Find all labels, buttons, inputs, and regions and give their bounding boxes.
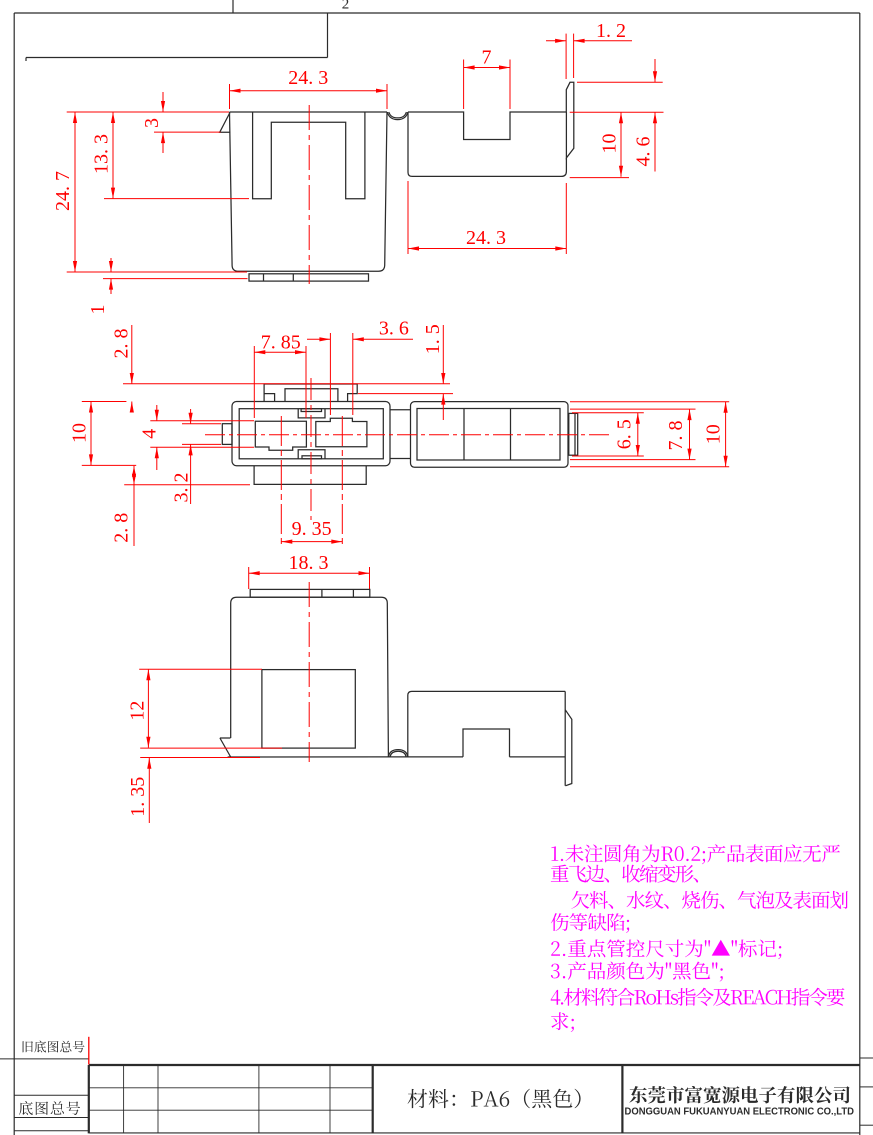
svg-text:7. 8: 7. 8: [665, 421, 687, 451]
svg-text:24. 7: 24. 7: [52, 171, 74, 211]
svg-text:24. 3: 24. 3: [466, 227, 506, 249]
svg-text:1. 2: 1. 2: [596, 20, 626, 42]
svg-text:1: 1: [87, 305, 109, 315]
svg-text:DONGGUAN FUKUANYUAN ELECTRONIC: DONGGUAN FUKUANYUAN ELECTRONIC CO.,LTD: [625, 1107, 855, 1118]
svg-text:3. 6: 3. 6: [379, 318, 409, 340]
svg-text:10: 10: [599, 134, 621, 154]
svg-text:1. 35: 1. 35: [127, 777, 149, 817]
svg-text:12: 12: [127, 701, 149, 721]
svg-text:24. 3: 24. 3: [288, 67, 328, 89]
svg-text:4: 4: [139, 429, 161, 439]
svg-text:10: 10: [702, 424, 724, 444]
svg-text:2. 8: 2. 8: [111, 513, 133, 543]
svg-text:7. 85: 7. 85: [261, 331, 301, 353]
svg-text:7: 7: [482, 47, 492, 69]
svg-text:3. 2: 3. 2: [171, 473, 193, 503]
svg-text:18. 3: 18. 3: [289, 552, 329, 574]
svg-text:2. 8: 2. 8: [111, 329, 133, 359]
svg-text:6. 5: 6. 5: [613, 419, 635, 449]
svg-text:3: 3: [141, 118, 163, 128]
svg-text:2: 2: [342, 0, 350, 13]
svg-text:1. 5: 1. 5: [422, 324, 444, 354]
svg-text:10: 10: [69, 423, 91, 443]
svg-text:9. 35: 9. 35: [292, 518, 332, 540]
svg-text:4. 6: 4. 6: [633, 137, 655, 167]
svg-text:13. 3: 13. 3: [91, 134, 113, 174]
